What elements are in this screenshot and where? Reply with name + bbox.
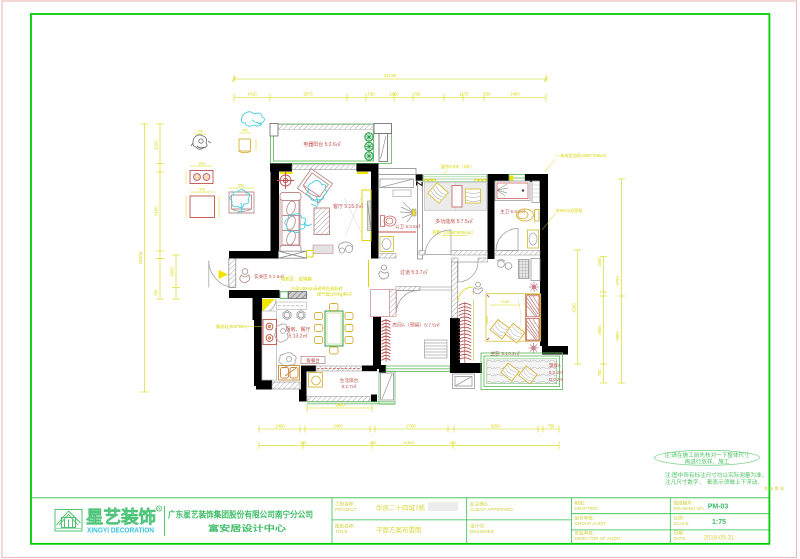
svg-text:800mm浴室柜: 800mm浴室柜 [556, 207, 583, 214]
svg-text:衣柜（2300*600mm）: 衣柜（2300*600mm） [432, 229, 476, 236]
svg-text:注:请在施工前先核对一下整体尺寸: 注:请在施工前先核对一下整体尺寸 [664, 451, 750, 459]
svg-text:公卫 5:3.6㎡: 公卫 5:3.6㎡ [395, 223, 421, 229]
svg-text:PROJECT: PROJECT [335, 507, 357, 512]
svg-text:2875: 2875 [303, 92, 313, 97]
svg-text:11730: 11730 [384, 73, 397, 78]
svg-text:一体成型浴柜1500*750mm: 一体成型浴柜1500*750mm [556, 152, 607, 159]
svg-text:集成灶(900*600): 集成灶(900*600) [216, 323, 248, 330]
svg-text:1410: 1410 [247, 92, 257, 97]
svg-text:1175: 1175 [459, 92, 469, 97]
svg-text:多功能房 5:7.5㎡: 多功能房 5:7.5㎡ [435, 218, 473, 225]
svg-text:1950: 1950 [170, 267, 175, 277]
svg-text:2400: 2400 [335, 403, 345, 408]
svg-text:飘窗A: 飘窗A [549, 362, 561, 369]
svg-text:玄关区 5:1.6㎡: 玄关区 5:1.6㎡ [254, 273, 284, 280]
svg-text:1060: 1060 [597, 257, 602, 267]
svg-text:730: 730 [368, 92, 376, 97]
svg-text:450: 450 [242, 129, 248, 133]
svg-text:690: 690 [238, 184, 244, 188]
svg-text:DRAWING NO: DRAWING NO [674, 506, 705, 511]
svg-text:5:2.7㎡: 5:2.7㎡ [342, 383, 357, 389]
svg-text:D:0.2m: D:0.2m [549, 377, 563, 382]
svg-text:1200: 1200 [154, 140, 159, 150]
svg-text:730: 730 [484, 92, 492, 97]
svg-text:1460: 1460 [510, 92, 520, 97]
svg-text:250: 250 [370, 440, 377, 445]
svg-text:平面方案布置图: 平面方案布置图 [376, 525, 422, 534]
svg-text:DIRECTOR OF AUDIT: DIRECTOR OF AUDIT [575, 536, 622, 541]
svg-text:330: 330 [300, 440, 307, 445]
svg-text:CLIENT APPROVED: CLIENT APPROVED [470, 507, 513, 512]
svg-text:5100: 5100 [154, 206, 159, 216]
svg-text:4200: 4200 [572, 303, 577, 313]
svg-text:2650: 2650 [597, 325, 602, 335]
svg-text:750: 750 [197, 130, 203, 134]
svg-text:星艺装饰: 星艺装饰 [86, 507, 156, 527]
svg-text:SCALE: SCALE [674, 521, 689, 526]
svg-text:房间A（预留）5:7.5㎡: 房间A（预留）5:7.5㎡ [392, 322, 440, 329]
svg-text:GROUP AUDIT: GROUP AUDIT [575, 521, 607, 526]
svg-text:生活阳台: 生活阳台 [340, 377, 359, 384]
svg-text:DESIGNER: DESIGNER [470, 529, 495, 534]
svg-text:XINGYI DECORATION: XINGYI DECORATION [87, 526, 154, 535]
svg-text:富安居设计中心: 富安居设计中心 [208, 523, 287, 533]
svg-text:厨房、餐厅: 厨房、餐厅 [285, 326, 310, 333]
svg-text:900: 900 [199, 188, 205, 192]
svg-text:750: 750 [548, 423, 556, 428]
svg-text:1460: 1460 [275, 423, 285, 428]
svg-text:1060: 1060 [389, 92, 399, 97]
svg-text:4750: 4750 [615, 276, 620, 286]
svg-text:11520: 11520 [404, 440, 416, 445]
svg-text:2400: 2400 [333, 423, 343, 428]
svg-text:5:2.3㎡: 5:2.3㎡ [549, 369, 564, 375]
svg-text:750: 750 [154, 289, 159, 297]
svg-text:DRAFTING: DRAFTING [575, 506, 599, 511]
svg-text:PM-03: PM-03 [708, 504, 729, 511]
svg-text:2950: 2950 [615, 331, 620, 341]
svg-text:华凯二十四城7栋: 华凯二十四城7栋 [376, 503, 426, 512]
svg-text:5:13.2㎡: 5:13.2㎡ [289, 333, 308, 340]
svg-text:730: 730 [414, 92, 422, 97]
svg-text:注:图中所有标注尺寸均以实际测量为准，: 注:图中所有标注尺寸均以实际测量为准， [665, 471, 767, 479]
svg-text:750: 750 [597, 369, 602, 377]
svg-text:窗帘4.9米（2米）: 窗帘4.9米（2米） [441, 163, 474, 170]
svg-text:1:75: 1:75 [712, 519, 726, 526]
svg-text:2018-05-31: 2018-05-31 [704, 536, 735, 542]
svg-text:2760: 2760 [406, 423, 416, 428]
svg-text:注凡尺寸数字， 都表示须做上下浮动。: 注凡尺寸数字， 都表示须做上下浮动。 [665, 478, 763, 486]
svg-text:TITLE: TITLE [335, 529, 348, 534]
svg-text:过道 5:3.7㎡: 过道 5:3.7㎡ [400, 269, 428, 276]
svg-text:16200: 16200 [138, 251, 143, 264]
svg-text:广东星艺装饰集团股份有限公司南宁分公司: 广东星艺装饰集团股份有限公司南宁分公司 [168, 510, 313, 520]
svg-text:共 张 第 张: 共 张 第 张 [764, 485, 785, 492]
svg-text:900: 900 [199, 162, 205, 166]
svg-text:电器阳台 5:2.6㎡: 电器阳台 5:2.6㎡ [303, 141, 341, 148]
svg-text:2150: 2150 [501, 299, 511, 304]
svg-text:1800: 1800 [484, 315, 489, 325]
svg-text:DATE: DATE [674, 536, 686, 541]
svg-text:260: 260 [450, 440, 457, 445]
svg-text:3250: 3250 [490, 423, 500, 428]
svg-text:备餐台: 备餐台 [306, 357, 320, 364]
svg-text:再进行放样、施工: 再进行放样、施工 [685, 458, 730, 466]
svg-text:鞋柜区、配电箱: 鞋柜区、配电箱 [281, 276, 312, 283]
svg-text:煤气管(100kg)柜子: 煤气管(100kg)柜子 [317, 291, 352, 298]
